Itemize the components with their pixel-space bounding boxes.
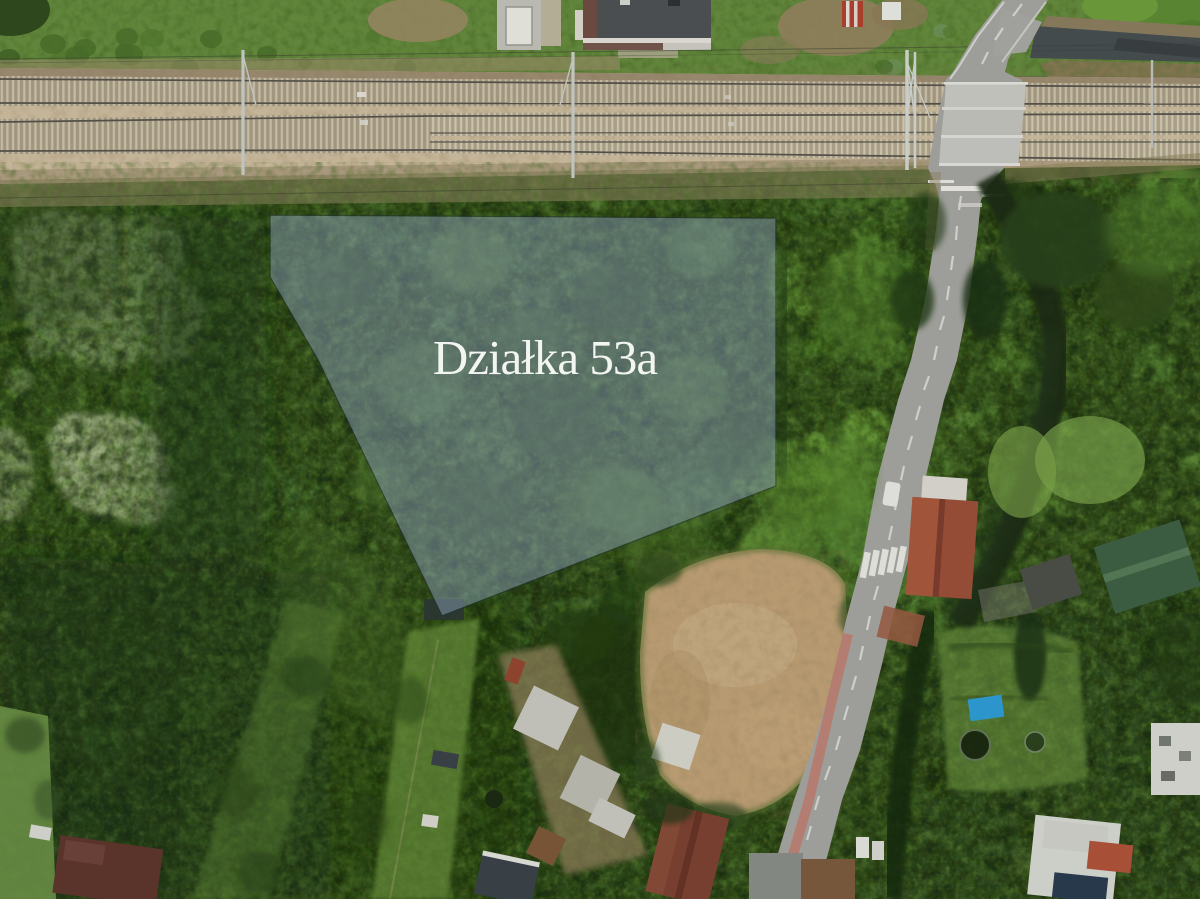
svg-text:Działka 53a: Działka 53a: [433, 330, 659, 385]
